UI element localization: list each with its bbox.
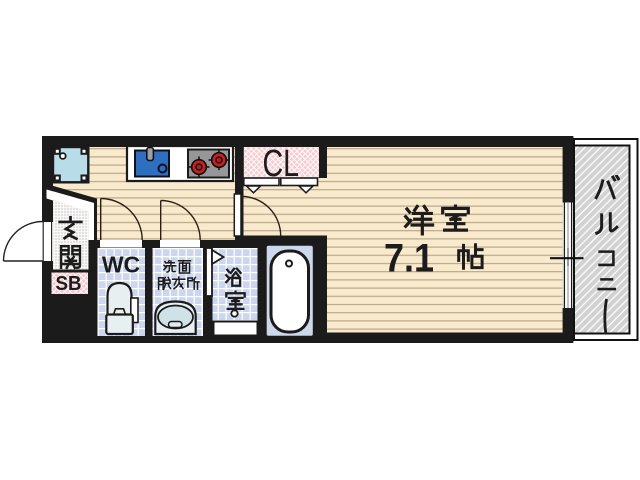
svg-text:WC: WC — [102, 252, 140, 278]
svg-text:CL: CL — [263, 143, 300, 185]
svg-text:SB: SB — [56, 273, 82, 295]
svg-text:7.1: 7.1 — [384, 237, 434, 281]
